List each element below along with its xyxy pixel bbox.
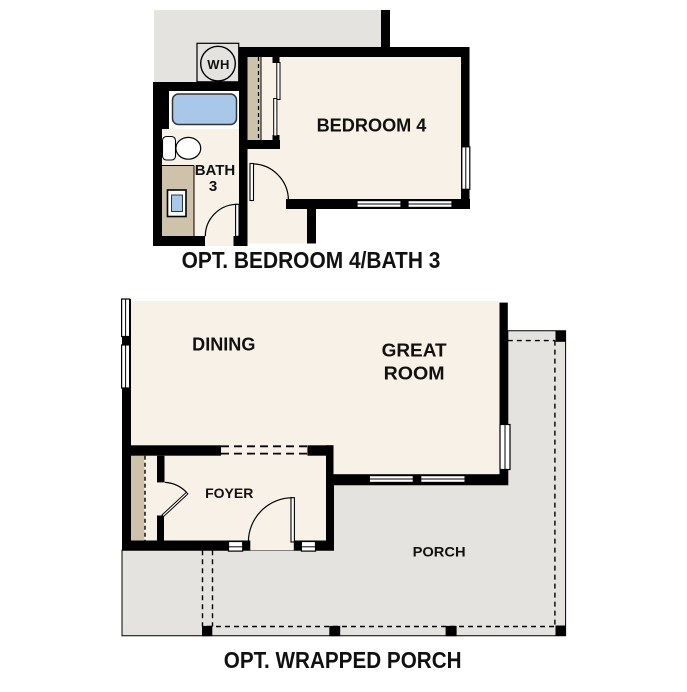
svg-text:GREAT: GREAT xyxy=(382,341,447,361)
svg-text:3: 3 xyxy=(209,178,217,195)
svg-text:WH: WH xyxy=(207,57,230,72)
svg-text:PORCH: PORCH xyxy=(413,544,466,560)
svg-text:DINING: DINING xyxy=(192,334,255,354)
svg-text:OPT. WRAPPED PORCH: OPT. WRAPPED PORCH xyxy=(224,647,462,673)
svg-text:BEDROOM 4: BEDROOM 4 xyxy=(317,116,427,136)
svg-text:OPT. BEDROOM 4/BATH 3: OPT. BEDROOM 4/BATH 3 xyxy=(182,247,441,273)
svg-text:ROOM: ROOM xyxy=(384,364,445,384)
svg-text:FOYER: FOYER xyxy=(205,485,253,501)
svg-text:BATH: BATH xyxy=(195,162,236,179)
